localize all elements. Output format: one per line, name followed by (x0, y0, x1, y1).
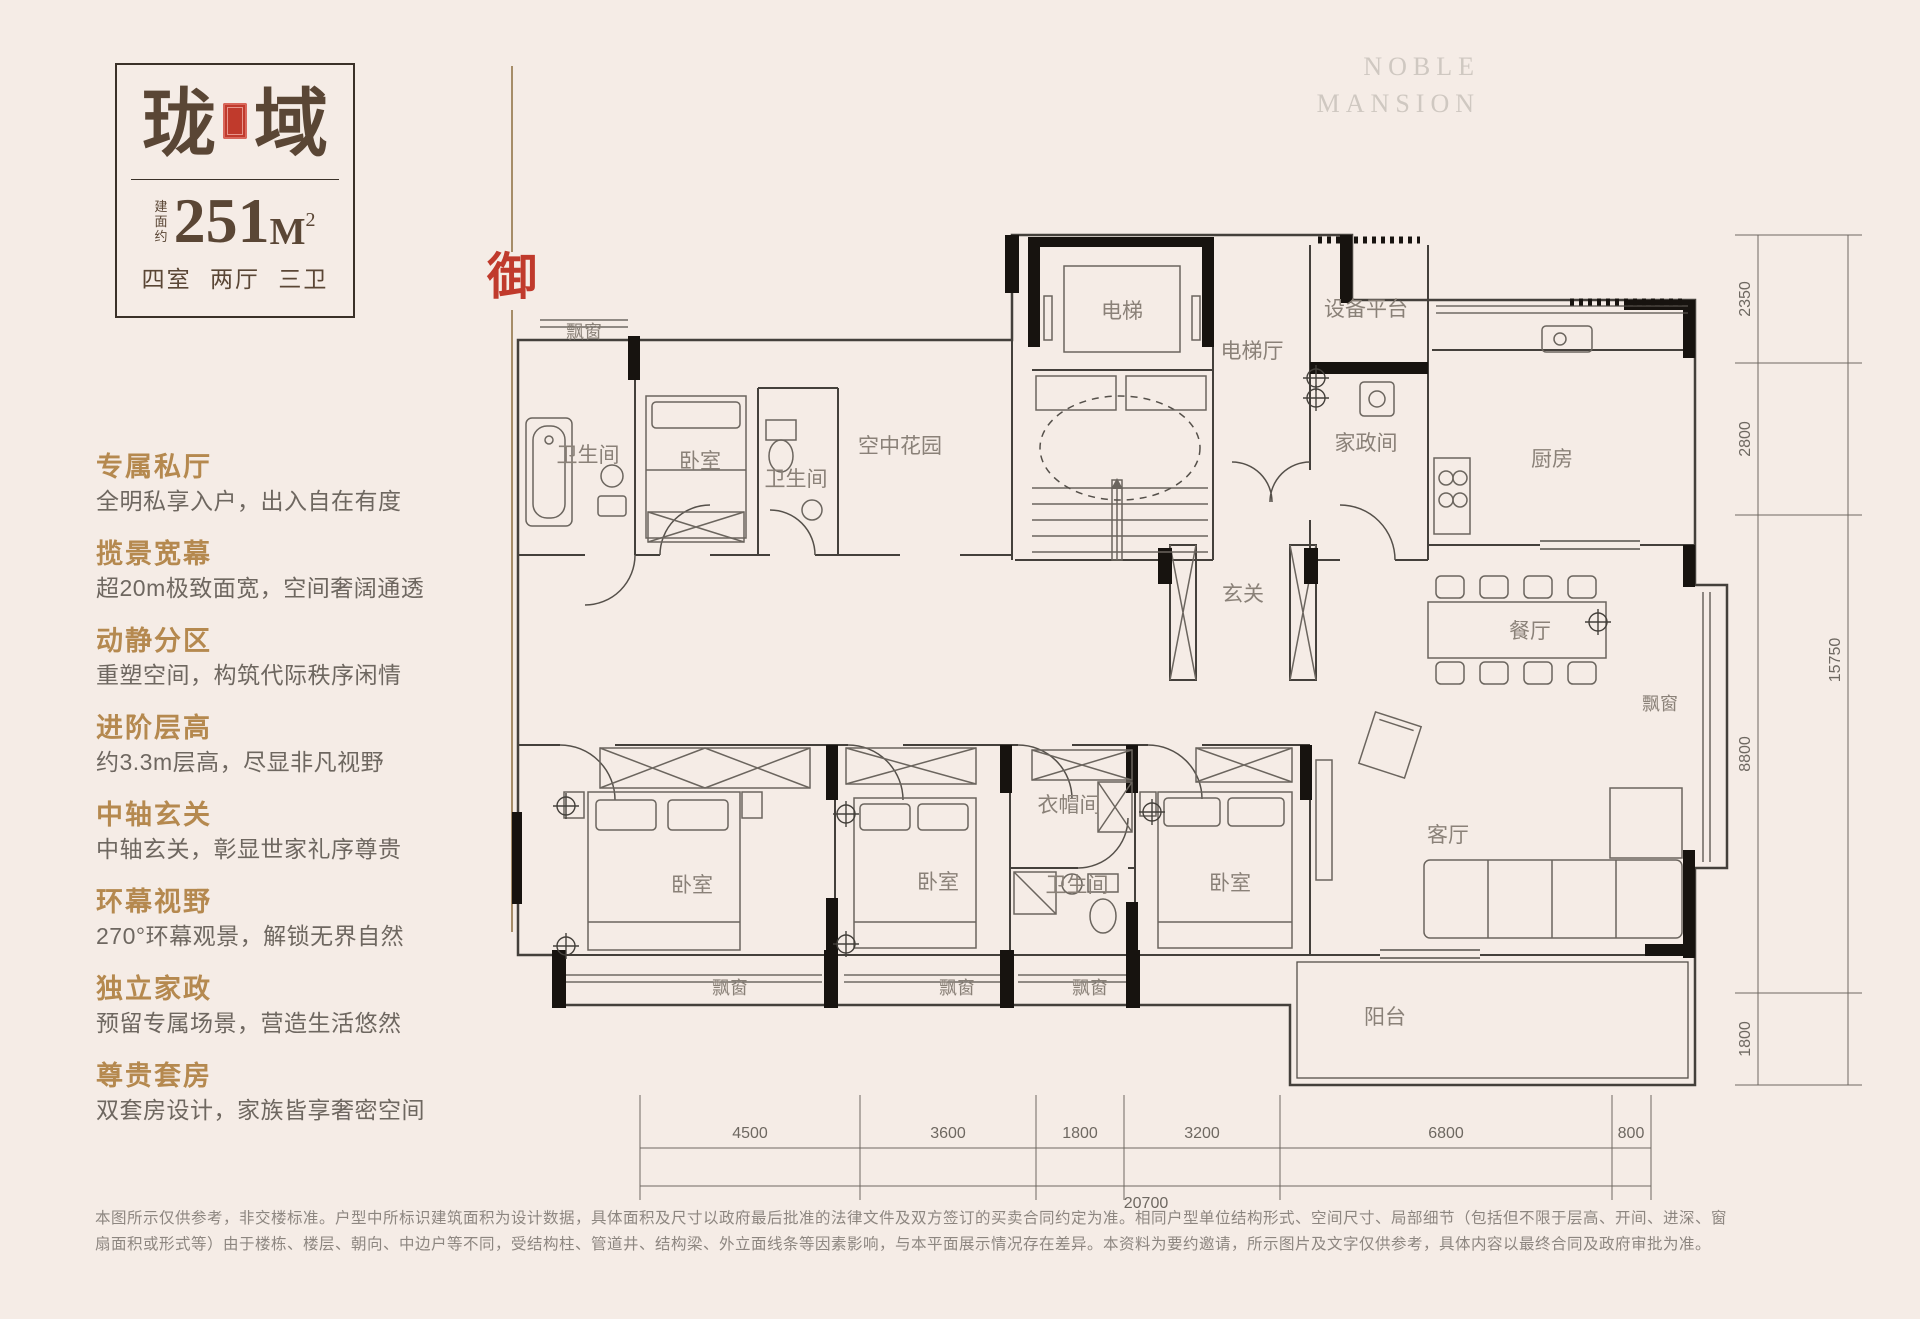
room-label-baywindow-3: 飘窗 (1072, 978, 1108, 998)
dim-right-4: 1800 (1737, 1021, 1754, 1057)
dimension-chain-right: 2350 2800 8800 1800 15750 (1735, 235, 1862, 1085)
bathroom-1-fixtures (526, 418, 626, 526)
room-label-baywindow-2: 飘窗 (939, 978, 975, 998)
room-label-living: 客厅 (1427, 824, 1469, 847)
room-label-dining: 餐厅 (1509, 620, 1551, 643)
room-label-foyer: 玄关 (1222, 583, 1264, 606)
disclaimer-line-2: 扇面积或形式等）由于楼栋、楼层、朝向、中边户等不同，受结构柱、管道井、结构梁、外… (95, 1232, 1785, 1258)
dim-right-total: 15750 (1827, 638, 1844, 683)
room-label-bath-1: 卫生间 (557, 444, 620, 467)
poster: 珑 域 建 面 约 251 M 2 四室 两厅 三卫 专属私厅 全明私享入户，出… (0, 0, 1920, 1319)
dim-bottom-4: 3200 (1184, 1125, 1220, 1142)
floor-plan: 电梯 电梯厅 设备平台 家政间 厨房 空中花园 飘窗 卫生间 卧室 卫生间 玄关… (0, 0, 1920, 1319)
dim-bottom-3: 1800 (1062, 1125, 1098, 1142)
disclaimer: 本图所示仅供参考，非交楼标准。户型中所标识建筑面积为设计数据，具体面积及尺寸以政… (95, 1206, 1785, 1258)
room-label-bedroom-1: 卧室 (671, 874, 713, 897)
elevator-cab (1036, 266, 1206, 410)
room-label-bedroom-top: 卧室 (679, 450, 721, 473)
dim-bottom-1: 4500 (732, 1125, 768, 1142)
kitchen-fixtures (1434, 326, 1592, 534)
room-label-baywindow-topleft: 飘窗 (566, 322, 602, 342)
room-labels: 电梯 电梯厅 设备平台 家政间 厨房 空中花园 飘窗 卫生间 卧室 卫生间 玄关… (557, 298, 1679, 1029)
living-furniture (1316, 712, 1682, 938)
room-label-sky-garden: 空中花园 (858, 435, 942, 458)
dim-bottom-5: 6800 (1428, 1125, 1464, 1142)
room-label-elevator-hall: 电梯厅 (1221, 340, 1284, 363)
room-label-elevator: 电梯 (1101, 300, 1143, 323)
dim-right-2: 2800 (1737, 421, 1754, 457)
room-label-bedroom-3: 卧室 (1209, 872, 1251, 895)
bay-windows (540, 240, 1710, 1078)
outer-walls (518, 235, 1727, 1085)
room-label-bath-3: 卫生间 (1046, 874, 1109, 897)
bedroom-2-furniture (846, 748, 976, 948)
utility-fixtures (1360, 382, 1394, 416)
dim-right-1: 2350 (1737, 281, 1754, 317)
staircase (1032, 396, 1208, 560)
room-label-housekeeping: 家政间 (1335, 432, 1398, 455)
dim-bottom-2: 3600 (930, 1125, 966, 1142)
dim-bottom-6: 800 (1618, 1125, 1645, 1142)
room-label-bedroom-2: 卧室 (917, 871, 959, 894)
dimension-chain-bottom: 4500 3600 1800 3200 6800 800 20700 (640, 1095, 1651, 1212)
room-label-equipment-platform: 设备平台 (1324, 298, 1408, 321)
room-label-cloakroom: 衣帽间 (1038, 794, 1101, 817)
bedroom-3-furniture (1140, 748, 1292, 948)
cloakroom-furniture (1032, 750, 1132, 832)
bedroom-1-furniture (564, 748, 810, 950)
room-label-baywindow-right: 飘窗 (1642, 694, 1678, 714)
dim-right-3: 8800 (1737, 736, 1754, 772)
room-label-bath-2: 卫生间 (765, 468, 828, 491)
disclaimer-line-1: 本图所示仅供参考，非交楼标准。户型中所标识建筑面积为设计数据，具体面积及尺寸以政… (95, 1206, 1785, 1232)
room-label-baywindow-1: 飘窗 (712, 978, 748, 998)
room-label-kitchen: 厨房 (1531, 448, 1573, 471)
room-label-balcony: 阳台 (1364, 1006, 1406, 1029)
